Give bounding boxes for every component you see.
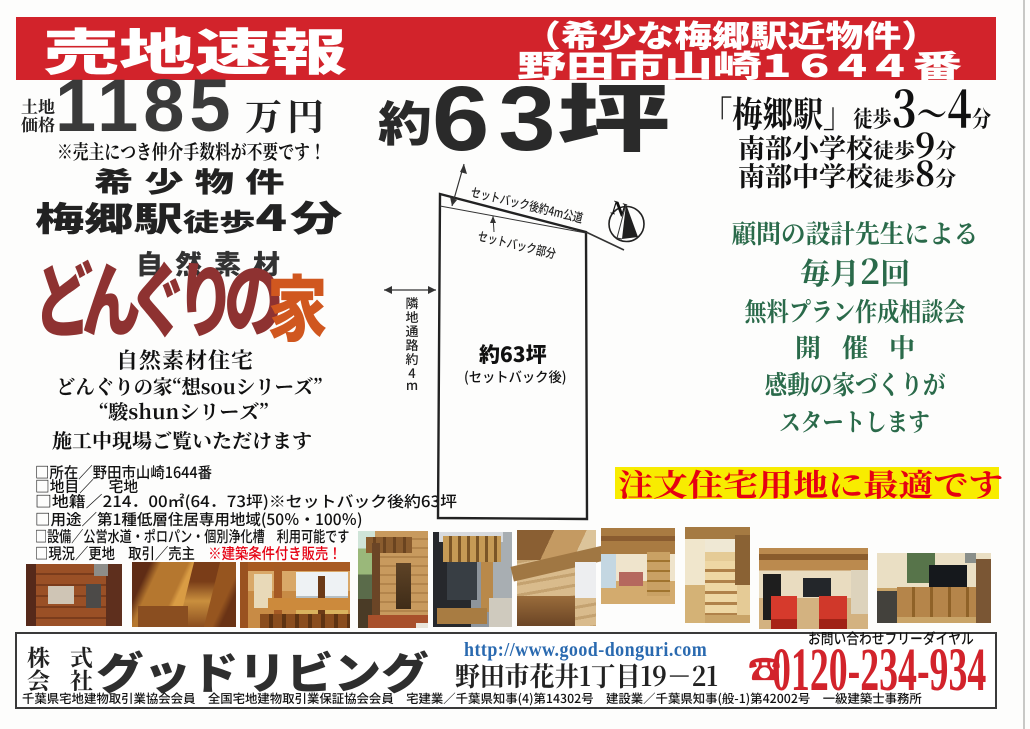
- svg-text:m: m: [406, 375, 418, 394]
- svg-text:セットバック部分: セットバック部分: [476, 227, 558, 263]
- svg-text:約63坪: 約63坪: [479, 339, 547, 369]
- svg-text:(セットバック後): (セットバック後): [464, 366, 566, 387]
